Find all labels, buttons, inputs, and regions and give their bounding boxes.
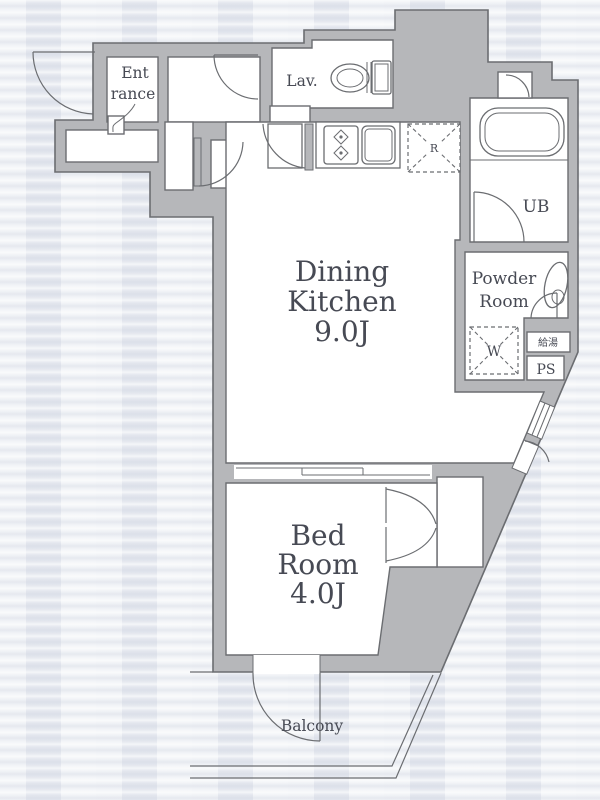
water-heater-label: 給湯 xyxy=(538,336,558,349)
sliding-door-gap xyxy=(234,465,432,479)
lavatory-door-leaf xyxy=(305,124,313,170)
burner-dot-1 xyxy=(339,135,342,138)
dk-label-line2: Kitchen xyxy=(287,285,396,318)
corridor-door-leaf xyxy=(194,138,201,186)
dk-label-line3: 9.0J xyxy=(314,315,370,348)
bedroom-label-line3: 4.0J xyxy=(290,577,346,610)
pipe-space-label: PS xyxy=(536,362,555,378)
entrance-label-line1: Ent xyxy=(121,64,149,82)
bath-entry-notch xyxy=(498,72,532,98)
lavatory-label: Lav. xyxy=(286,72,317,90)
sink xyxy=(362,126,395,164)
powder-label-line2: Room xyxy=(479,292,528,312)
balcony-door-opening xyxy=(253,655,320,674)
genkan-step xyxy=(66,130,158,162)
room-hall xyxy=(168,57,260,122)
burner-dot-2 xyxy=(339,151,342,154)
room-closet xyxy=(437,477,483,567)
unit-bath-label: UB xyxy=(523,197,550,217)
washer-label: W xyxy=(487,344,502,360)
dk-label-line1: Dining xyxy=(295,255,389,288)
corridor-nook xyxy=(165,122,193,190)
floor-plan-page: Ent rance Lav. UB Powder Room Dining Kit… xyxy=(0,0,600,800)
bathtub-icon xyxy=(480,108,564,156)
refrigerator-label: R xyxy=(430,142,439,155)
balcony-label: Balcony xyxy=(281,717,344,735)
floor-plan-drawing: Ent rance Lav. UB Powder Room Dining Kit… xyxy=(0,0,600,800)
powder-label-line1: Powder xyxy=(472,269,537,289)
lavatory-fixtures xyxy=(331,61,391,94)
entrance-door-arc xyxy=(33,52,93,114)
entrance-label-line2: rance xyxy=(111,85,156,103)
stove xyxy=(324,126,358,164)
